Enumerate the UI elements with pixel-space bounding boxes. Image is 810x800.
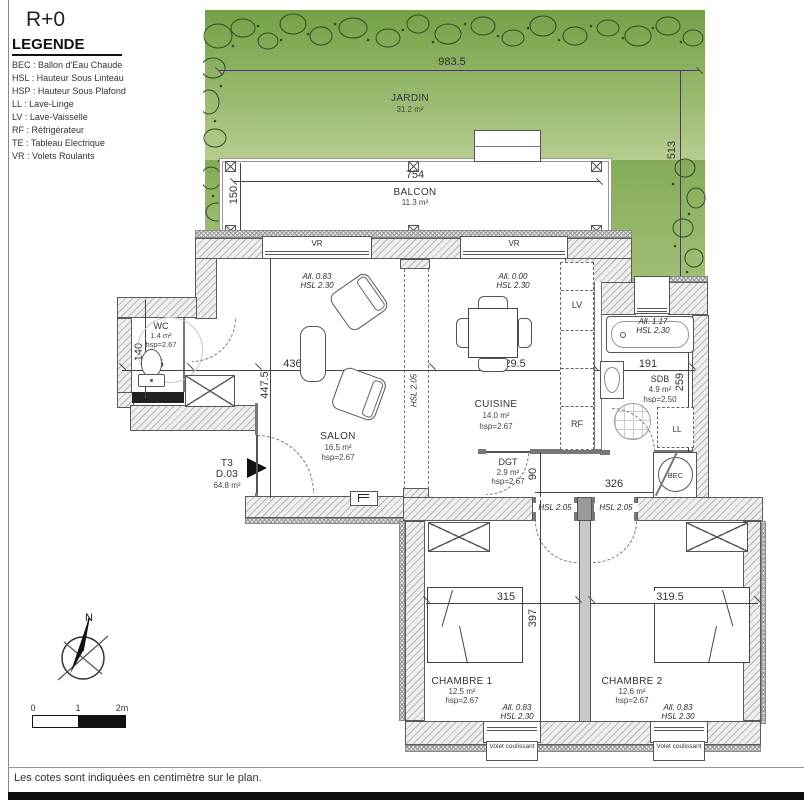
balcony-label: BALCON — [385, 187, 445, 198]
dim-garden-depth: 513 — [666, 135, 678, 165]
sdb-label: SDB — [640, 374, 680, 384]
salon-hsp: hsp=2.67 — [312, 453, 364, 462]
cuisine-window-hsl: HSL 2.30 — [488, 281, 538, 290]
legend-heading: LEGENDE — [12, 36, 122, 56]
dim-line-dgt-depth — [540, 452, 541, 497]
dim-line-balcony-depth — [240, 163, 241, 233]
dgt-label: DGT — [488, 457, 528, 467]
vr-label-salon: VR — [262, 239, 372, 248]
chambre1-door-arc — [535, 521, 577, 563]
wall-dgt-north-left — [478, 449, 486, 454]
wall-sdb-south-left — [600, 450, 610, 455]
chambre1-window-hsl: HSL 2.30 — [492, 712, 542, 721]
sdb-window-glazing — [637, 308, 667, 313]
volet-label-1: Volet coulissant — [487, 743, 537, 751]
garden-area-label: 31.2 m² — [380, 105, 440, 114]
chambre2-area: 12.6 m² — [597, 687, 667, 696]
dining-chair — [518, 318, 532, 348]
te-symbol-icon — [358, 497, 369, 498]
frame-left — [8, 0, 9, 800]
compass-rose: N — [52, 610, 114, 690]
cuisine-area: 14.0 m² — [470, 411, 522, 420]
scale-tick-1: 1 — [73, 703, 83, 713]
dgt-hsp: hsp=2.67 — [486, 477, 530, 486]
washing-machine-label: LL — [662, 425, 692, 434]
floor-plan-sheet: R+0 LEGENDE BEC : Ballon d'Eau Chaude HS… — [0, 0, 810, 800]
salon-window-allege: All. 0.83 — [292, 272, 342, 281]
wall-corridor-left — [403, 497, 533, 521]
legend-item: LV : Lave-Vaisselle — [12, 112, 192, 122]
legend-item: VR : Volets Roulants — [12, 151, 192, 161]
wc-area: 1.4 m² — [145, 331, 177, 340]
salon-window-glazing — [265, 251, 369, 257]
unit-type: T3 — [210, 458, 244, 469]
wall-ch1-west — [405, 521, 425, 721]
unit-lot: D.03 — [210, 469, 244, 480]
insulation-ch2-east — [761, 521, 766, 724]
balcony-area-label: 11.3 m² — [385, 198, 445, 207]
sdb-area: 4.9 m² — [640, 385, 680, 394]
scale-bar-filled — [78, 715, 126, 728]
dining-chair — [478, 358, 508, 372]
chambre2-window-allege: All. 0.83 — [653, 703, 703, 712]
salon-label: SALON — [312, 431, 364, 442]
wall-south-salon — [245, 496, 420, 518]
scale-tick-0: 0 — [28, 703, 38, 713]
salon-area: 16.5 m² — [312, 443, 364, 452]
dim-garden-width: 983.5 — [422, 56, 482, 68]
bathtub-drain-icon — [620, 332, 626, 338]
dim-dgt-width: 326 — [598, 478, 630, 490]
cuisine-window-allege: All. 0.00 — [488, 272, 538, 281]
wall-chambre-divider-head — [577, 497, 592, 521]
dim-chambre2-width: 319.5 — [650, 591, 690, 603]
toilet-icon — [141, 349, 162, 377]
vr-label-cuisine: VR — [460, 239, 568, 248]
dim-line-chambre-depth — [540, 500, 541, 721]
wall-sdb-north-right — [668, 282, 708, 315]
chambre2-door-hsl: HSL 2.05 — [594, 503, 638, 512]
legend-item: LL : Lave-Linge — [12, 99, 192, 109]
legend-item: RF : Réfrigérateur — [12, 125, 192, 135]
dim-balcony-width: 754 — [395, 169, 435, 181]
wall-chambre-divider — [579, 521, 591, 721]
dim-sdb-width: 191 — [632, 358, 664, 370]
wall-wc-top — [117, 297, 197, 318]
dim-balcony-depth: 150 — [228, 180, 240, 210]
sdb-hsp: hsp=2.50 — [640, 395, 680, 404]
dining-table — [468, 308, 518, 358]
dim-line-chambre1 — [426, 603, 579, 604]
wall-west-band — [130, 405, 256, 431]
chambre2-door-arc — [593, 521, 637, 563]
chambre1-area: 12.5 m² — [427, 687, 497, 696]
kitchen-unit-divider — [561, 290, 593, 291]
wall-entry-upper — [255, 403, 258, 435]
wardrobe — [686, 522, 748, 552]
wardrobe — [428, 522, 490, 552]
opening-salon-cuisine — [428, 269, 429, 489]
legend-item: HSL : Hauteur Sous Linteau — [12, 73, 192, 83]
dim-line-balcony-width — [233, 181, 600, 182]
wall-stub-opening-top — [400, 259, 430, 269]
wall-nw-vertical — [195, 258, 217, 319]
dim-line-garden-depth — [680, 71, 681, 281]
compass-needle-icon — [70, 618, 89, 674]
legend-item: BEC : Ballon d'Eau Chaude — [12, 60, 192, 70]
dim-dgt-depth: 90 — [527, 463, 539, 485]
chambre2-window-hsl: HSL 2.30 — [653, 712, 703, 721]
kitchen-unit-divider — [561, 330, 593, 331]
sdb-window-allege: All. 1.17 — [628, 317, 678, 326]
dim-line-chambre2 — [591, 603, 758, 604]
chambre1-label: CHAMBRE 1 — [427, 676, 497, 687]
opening-salon-cuisine — [404, 269, 405, 489]
wc-door-arc — [192, 318, 236, 362]
dim-chambre-depth: 397 — [527, 604, 539, 632]
te-symbol-icon — [358, 494, 369, 495]
toilet-button-icon — [150, 379, 153, 382]
chambre1-hsp: hsp=2.67 — [427, 696, 497, 705]
volet-label-2: Volet coulissant — [654, 743, 704, 751]
chambre2-window-glazing — [654, 727, 704, 733]
fridge-label: RF — [561, 419, 593, 429]
chambre2-label: CHAMBRE 2 — [597, 676, 667, 687]
footer-note: Les cotes sont indiquées en centimètre s… — [14, 772, 434, 784]
chambre1-window-glazing — [487, 727, 537, 733]
te-symbol-icon — [358, 494, 359, 502]
wardrobe — [185, 375, 235, 407]
opening-hsl-label: HSL 2.05 — [410, 369, 419, 413]
footer-divider — [8, 767, 804, 768]
wc-label: WC — [147, 321, 175, 331]
insulation-chambres-south — [405, 745, 761, 752]
dgt-area: 2.9 m² — [488, 468, 528, 477]
salon-window-hsl: HSL 2.30 — [292, 281, 342, 290]
sdb-window-hsl: HSL 2.30 — [628, 326, 678, 335]
cuisine-window-glazing — [463, 251, 565, 257]
legend-item: TE : Tableau Electrique — [12, 138, 192, 148]
dim-chambre1-width: 315 — [490, 591, 522, 603]
wall-sdb-north-left — [600, 282, 636, 315]
kitchen-unit-divider — [561, 406, 593, 407]
balcony-post — [225, 161, 236, 172]
dim-salon-depth: 447.5 — [259, 366, 271, 404]
wall-wc-black-strip — [132, 392, 184, 403]
wall-corridor-right — [637, 497, 763, 521]
dim-line-garden-width — [218, 70, 700, 71]
garden-gate-rail — [474, 146, 541, 147]
coffee-table — [300, 326, 326, 382]
page-title: R+0 — [26, 8, 86, 32]
wall-wc-left — [117, 318, 132, 398]
compass-north-label: N — [85, 612, 93, 624]
balcony-post — [591, 161, 602, 172]
unit-area: 64.8 m² — [206, 481, 248, 490]
entry-door-arc — [257, 435, 314, 493]
dishwasher-label: LV — [561, 300, 593, 310]
kitchen-unit-divider — [561, 368, 593, 369]
scale-tick-2: 2m — [112, 703, 132, 713]
wc-hsp: hsp=2.67 — [143, 340, 179, 349]
chambre1-window-allege: All. 0.83 — [492, 703, 542, 712]
cuisine-label: CUISINE — [470, 399, 522, 410]
armchair — [330, 365, 388, 422]
insulation-south-salon — [245, 518, 420, 524]
garden-label: JARDIN — [380, 93, 440, 104]
cuisine-hsp: hsp=2.67 — [470, 422, 522, 431]
legend-item: HSP : Hauteur Sous Plafond — [12, 86, 192, 96]
frame-bottom-bar — [8, 792, 804, 800]
